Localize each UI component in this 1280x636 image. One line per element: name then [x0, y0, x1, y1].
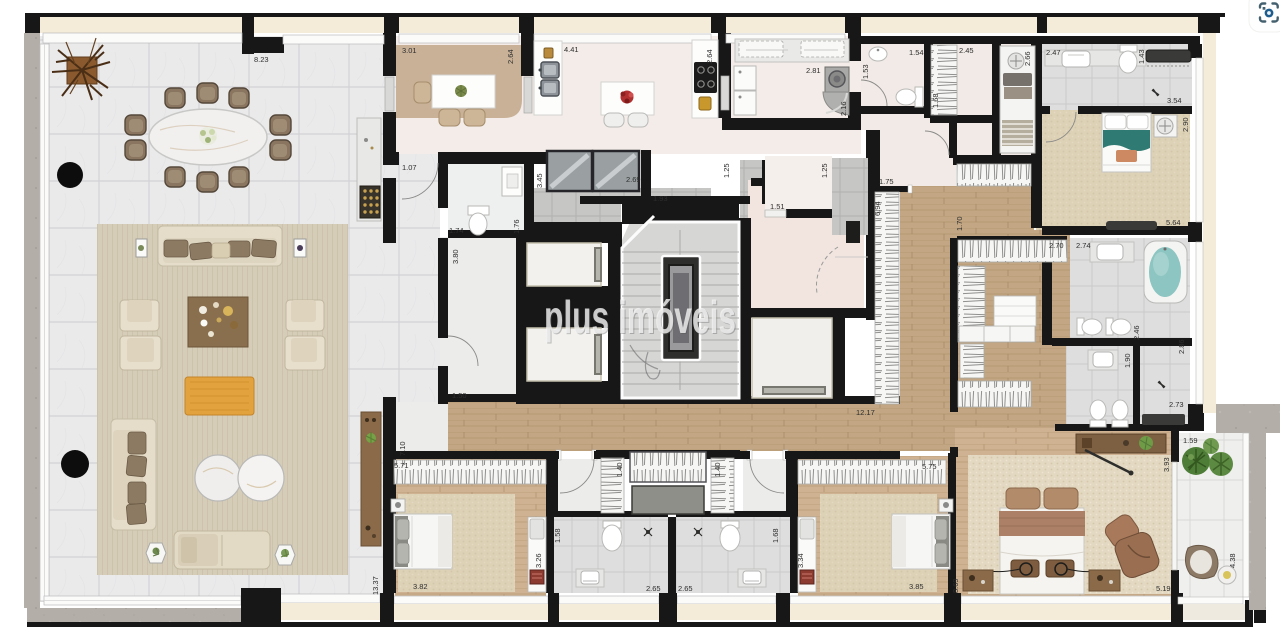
svg-text:3.82: 3.82: [413, 582, 428, 591]
svg-text:2.74: 2.74: [1076, 241, 1091, 250]
svg-text:1.90: 1.90: [1123, 353, 1132, 368]
svg-text:2.47: 2.47: [1046, 48, 1061, 57]
svg-text:1.93: 1.93: [653, 194, 668, 203]
svg-text:2.45: 2.45: [959, 46, 974, 55]
svg-text:1.68: 1.68: [931, 93, 940, 108]
svg-text:2.69: 2.69: [626, 175, 641, 184]
svg-text:1.50: 1.50: [452, 391, 467, 400]
svg-text:7.10: 7.10: [398, 441, 407, 456]
svg-text:2.64: 2.64: [705, 49, 714, 64]
svg-text:2.65: 2.65: [678, 584, 693, 593]
svg-text:6.94: 6.94: [873, 201, 882, 216]
svg-text:5.19: 5.19: [1156, 584, 1171, 593]
svg-text:3.01: 3.01: [402, 46, 417, 55]
svg-text:1.74: 1.74: [449, 226, 464, 235]
svg-text:3.26: 3.26: [534, 553, 543, 568]
svg-text:1.40: 1.40: [713, 462, 722, 477]
svg-text:2.70: 2.70: [1049, 241, 1064, 250]
svg-text:5.64: 5.64: [1166, 218, 1181, 227]
svg-text:2.64: 2.64: [506, 49, 515, 64]
svg-text:1.25: 1.25: [820, 163, 829, 178]
svg-text:plus imóveis: plus imóveis: [544, 291, 736, 343]
svg-text:2.86: 2.86: [1177, 339, 1186, 354]
svg-text:1.70: 1.70: [955, 216, 964, 231]
svg-text:1.54: 1.54: [909, 48, 924, 57]
svg-text:1.59: 1.59: [1183, 436, 1198, 445]
svg-text:1.07: 1.07: [402, 163, 417, 172]
svg-text:2.66: 2.66: [1023, 51, 1032, 66]
svg-text:1.68: 1.68: [771, 528, 780, 543]
svg-text:8.69: 8.69: [951, 578, 960, 593]
svg-text:2.16: 2.16: [839, 101, 848, 116]
svg-text:13.37: 13.37: [371, 576, 380, 595]
svg-text:4.41: 4.41: [564, 45, 579, 54]
svg-text:3.80: 3.80: [451, 249, 460, 264]
svg-text:8.23: 8.23: [254, 55, 269, 64]
svg-text:3.45: 3.45: [535, 173, 544, 188]
svg-text:1.58: 1.58: [553, 528, 562, 543]
svg-text:3.34: 3.34: [796, 553, 805, 568]
svg-text:2.65: 2.65: [646, 584, 661, 593]
svg-text:3.54: 3.54: [1167, 96, 1182, 105]
svg-text:1.51: 1.51: [770, 202, 785, 211]
svg-text:1.75: 1.75: [879, 177, 894, 186]
svg-text:3.85: 3.85: [909, 582, 924, 591]
svg-text:5.71: 5.71: [394, 461, 409, 470]
svg-text:2.81: 2.81: [806, 66, 821, 75]
svg-text:1.53: 1.53: [861, 64, 870, 79]
svg-text:2.90: 2.90: [1181, 117, 1190, 132]
svg-text:12.17: 12.17: [856, 408, 875, 417]
svg-text:2.46: 2.46: [1132, 325, 1141, 340]
svg-text:5.75: 5.75: [922, 462, 937, 471]
svg-text:1.76: 1.76: [512, 219, 521, 234]
svg-text:2.73: 2.73: [1169, 400, 1184, 409]
svg-text:1.43: 1.43: [1137, 49, 1146, 64]
svg-text:4.38: 4.38: [1228, 553, 1237, 568]
svg-text:3.93: 3.93: [1162, 457, 1171, 472]
svg-text:1.25: 1.25: [722, 163, 731, 178]
svg-text:1.40: 1.40: [615, 462, 624, 477]
